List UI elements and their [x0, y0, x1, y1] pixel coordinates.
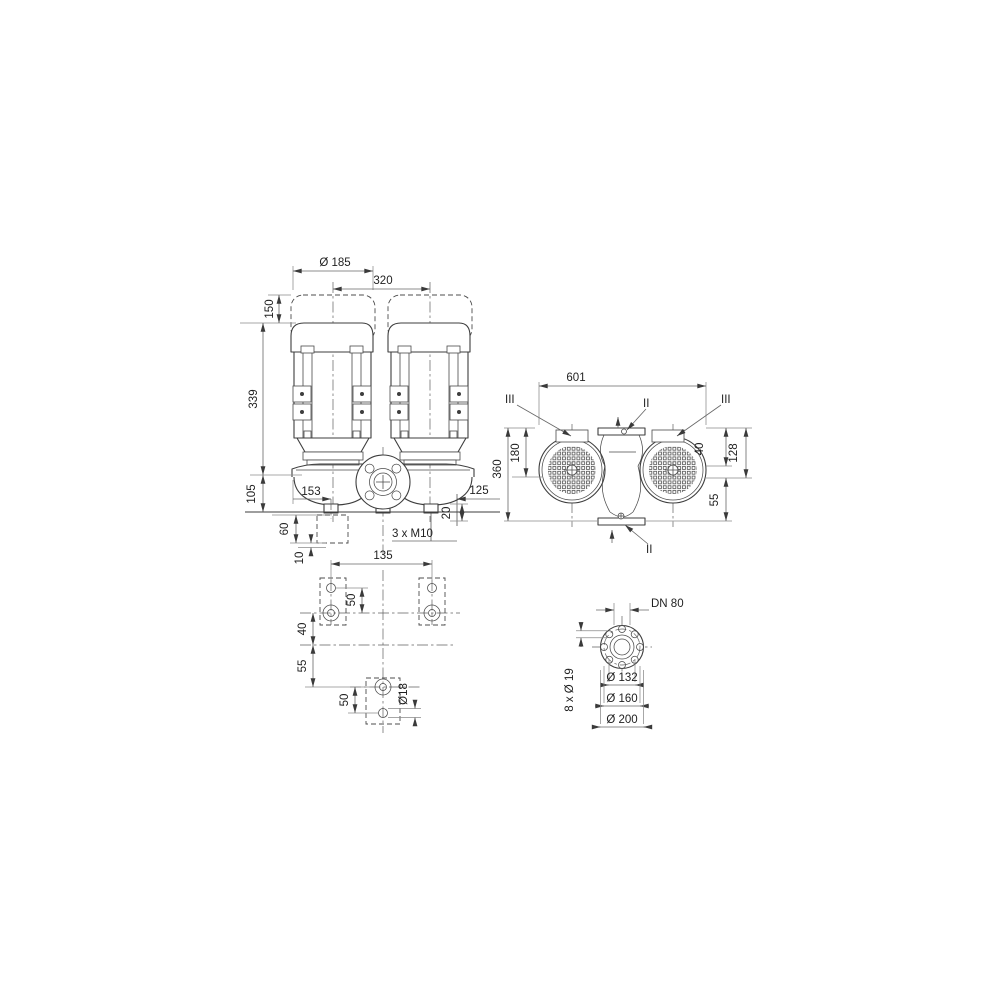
dim-axis-offset-40: 40 — [297, 623, 309, 636]
section-label-iii-right: III — [721, 394, 731, 406]
dim-motor-spacing: 320 — [373, 275, 392, 287]
dim-nominal-diameter: DN 80 — [651, 598, 684, 610]
top-view-dimensions: 601 360 180 40 128 55 II II III — [492, 372, 752, 556]
dim-motor-diameter: Ø 185 — [319, 257, 350, 269]
dim-port-to-port: 360 — [492, 459, 504, 478]
suction-flange — [598, 513, 645, 543]
dim-bottom-offset-55: 55 — [709, 494, 721, 507]
dim-hole-offset-bottom: 50 — [339, 694, 351, 707]
dim-foot-offset-right: 125 — [469, 485, 488, 497]
top-view-casing — [600, 435, 642, 517]
foundation-plan: 135 50 40 55 50 Ø18 — [297, 550, 460, 733]
top-view: 601 360 180 40 128 55 II II III — [492, 372, 752, 556]
dim-motor-height: 339 — [248, 389, 260, 408]
flange-face — [601, 626, 644, 669]
section-label-ii-bottom: II — [646, 544, 652, 556]
dim-axis-offset-55: 55 — [297, 660, 309, 673]
dim-hub-diameter: Ø 132 — [606, 672, 637, 684]
section-label-ii-top: II — [643, 398, 649, 410]
pad-top-left — [320, 578, 346, 625]
dim-top-offset-40: 40 — [694, 443, 706, 456]
dim-foot-offset-left: 153 — [301, 486, 320, 498]
foundation-pad-dashed — [317, 515, 348, 543]
motor-right — [388, 323, 470, 465]
drawing-page: Ø 185 320 150 339 105 153 125 20 — [0, 0, 1000, 1000]
technical-drawing: Ø 185 320 150 339 105 153 125 20 — [0, 0, 1000, 1000]
dim-hole-offset-top: 50 — [346, 594, 358, 607]
terminal-box-top-right — [652, 430, 684, 442]
dim-bolt-holes: 8 x Ø 19 — [564, 668, 576, 711]
fan-cover-left — [539, 437, 605, 503]
front-view: Ø 185 320 150 339 105 153 125 20 — [240, 257, 500, 564]
dim-pad-height: 60 — [279, 523, 291, 536]
dim-hole-diameter: Ø18 — [398, 683, 410, 705]
pipe-flange-front — [356, 455, 410, 509]
motor-left — [291, 323, 373, 465]
dim-option-height: 150 — [264, 299, 276, 318]
dim-total-width: 601 — [566, 372, 585, 384]
dim-axis-to-base: 105 — [246, 484, 258, 503]
dim-grout: 10 — [294, 552, 306, 565]
dim-bolt-circle: Ø 160 — [606, 693, 637, 705]
dim-foot-height: 20 — [441, 507, 453, 520]
dim-bolt-spacing: 135 — [373, 550, 392, 562]
foundation-dimensions: 135 50 40 55 50 Ø18 — [297, 550, 432, 726]
callout-anchor-bolts: 3 x M10 — [392, 528, 433, 540]
dim-outer-diameter: Ø 200 — [606, 714, 637, 726]
discharge-flange — [598, 417, 645, 435]
dim-top-offset-128: 128 — [728, 443, 740, 462]
section-label-iii-left: III — [505, 394, 515, 406]
flange-detail: DN 80 Ø 132 Ø 160 Ø 200 8 x Ø 19 — [564, 598, 684, 727]
terminal-box-top-left — [556, 430, 588, 442]
dim-face-to-axis: 180 — [510, 443, 522, 462]
